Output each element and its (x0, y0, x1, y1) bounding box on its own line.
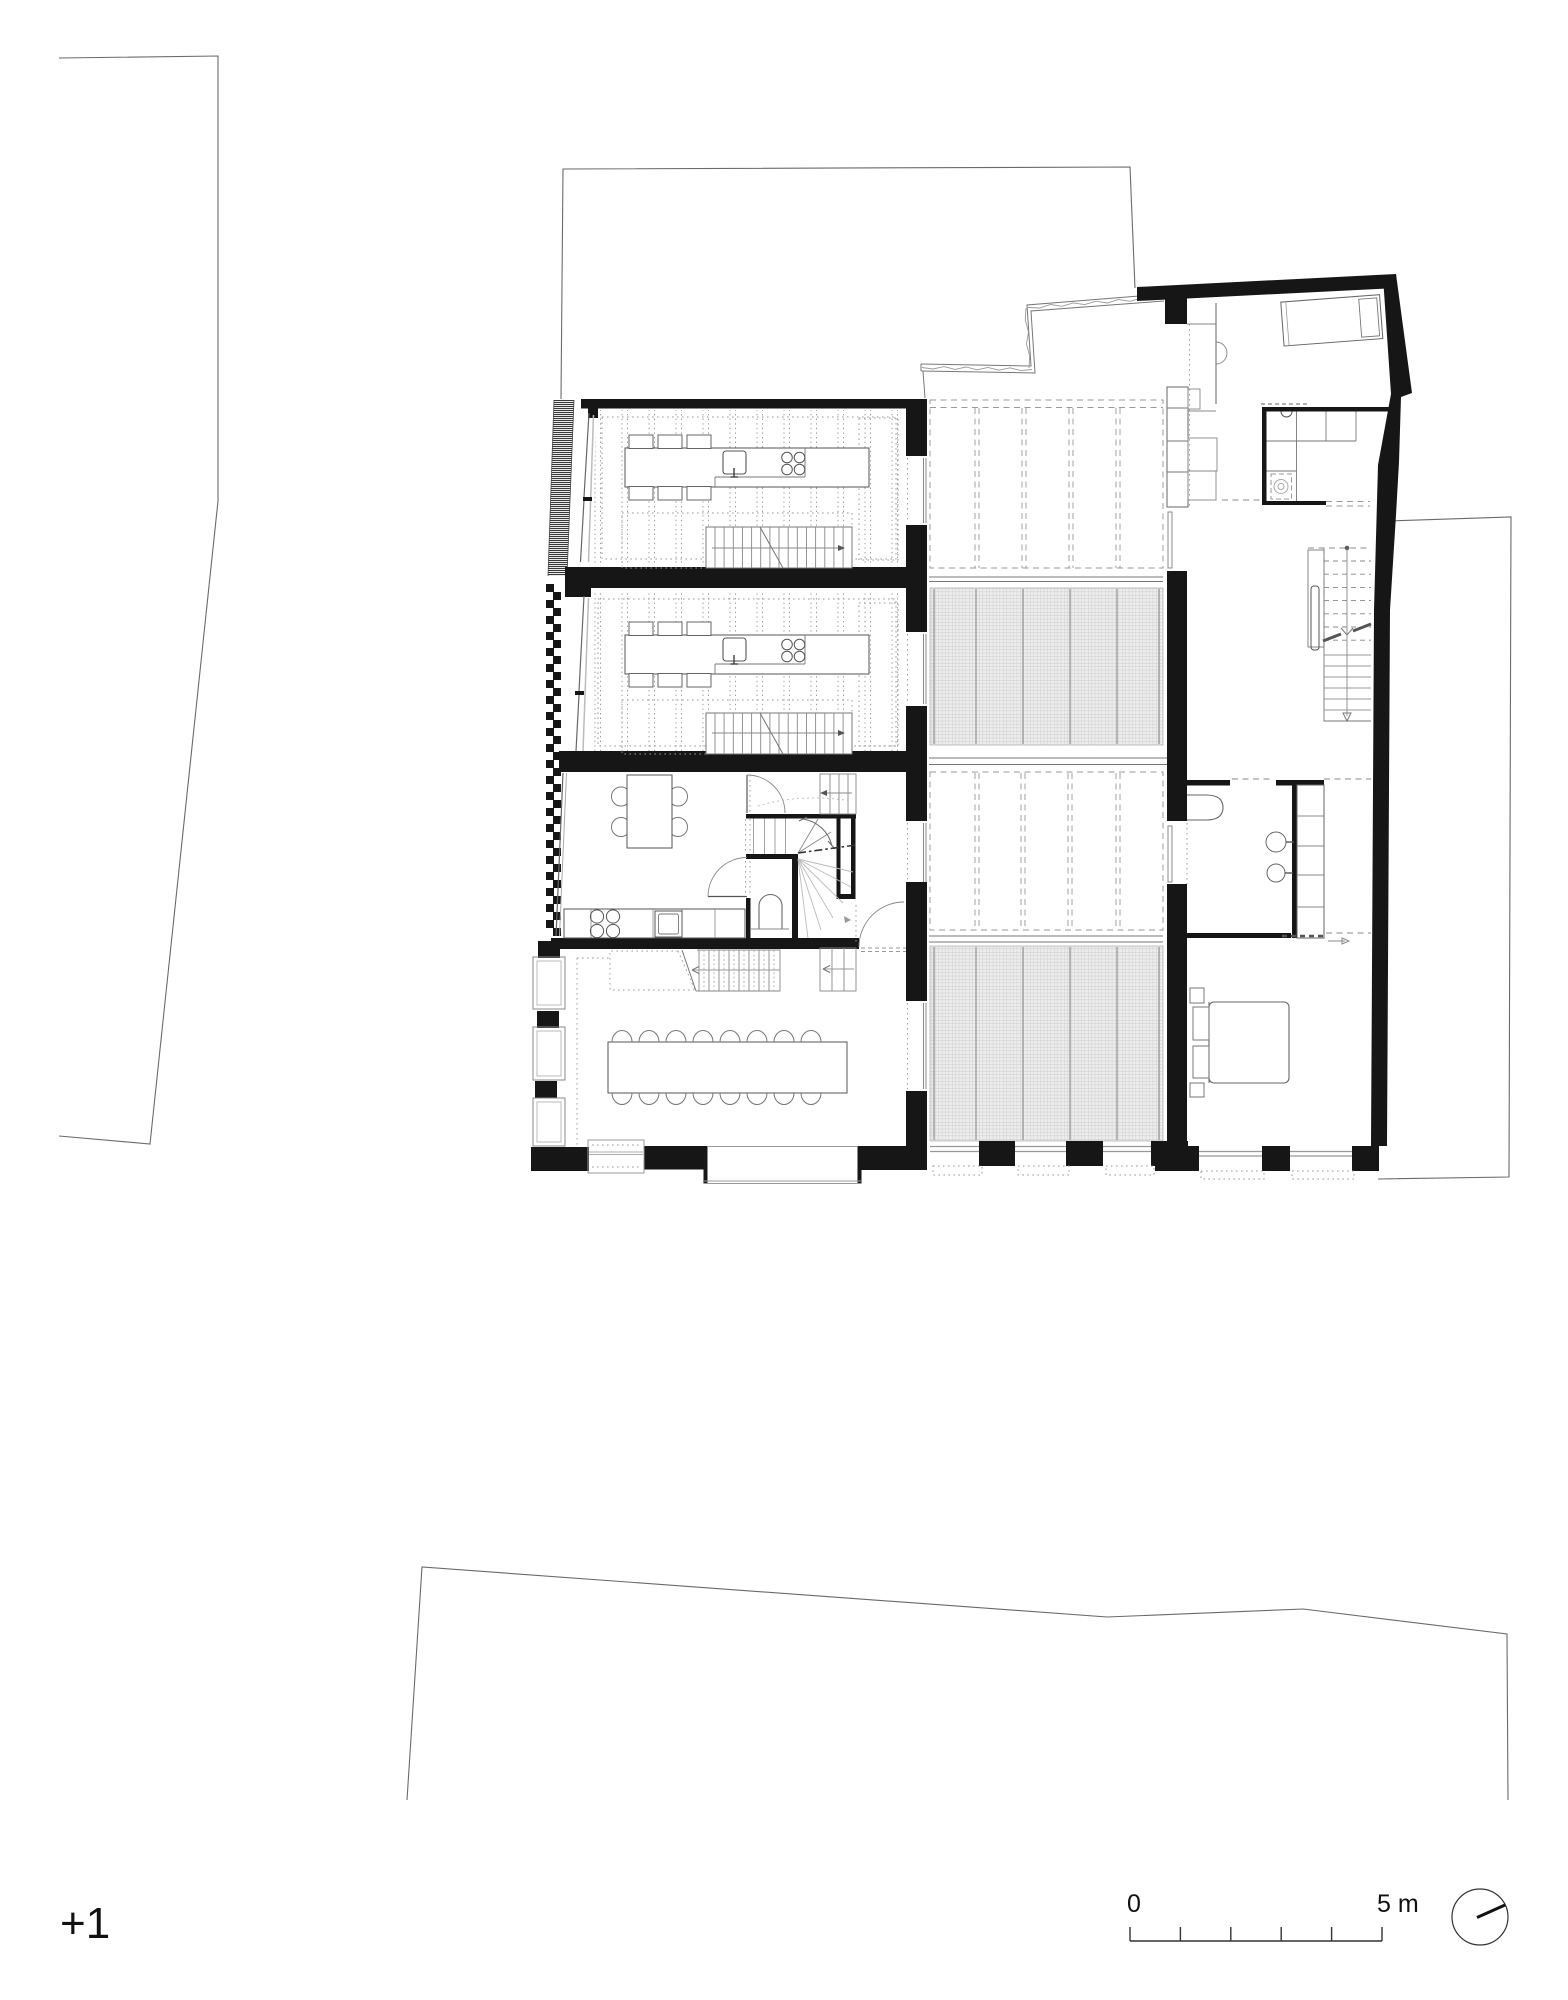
svg-text:5 m: 5 m (1377, 1890, 1419, 1918)
svg-text:0: 0 (1127, 1890, 1141, 1918)
svg-text:+1: +1 (60, 1899, 110, 1948)
